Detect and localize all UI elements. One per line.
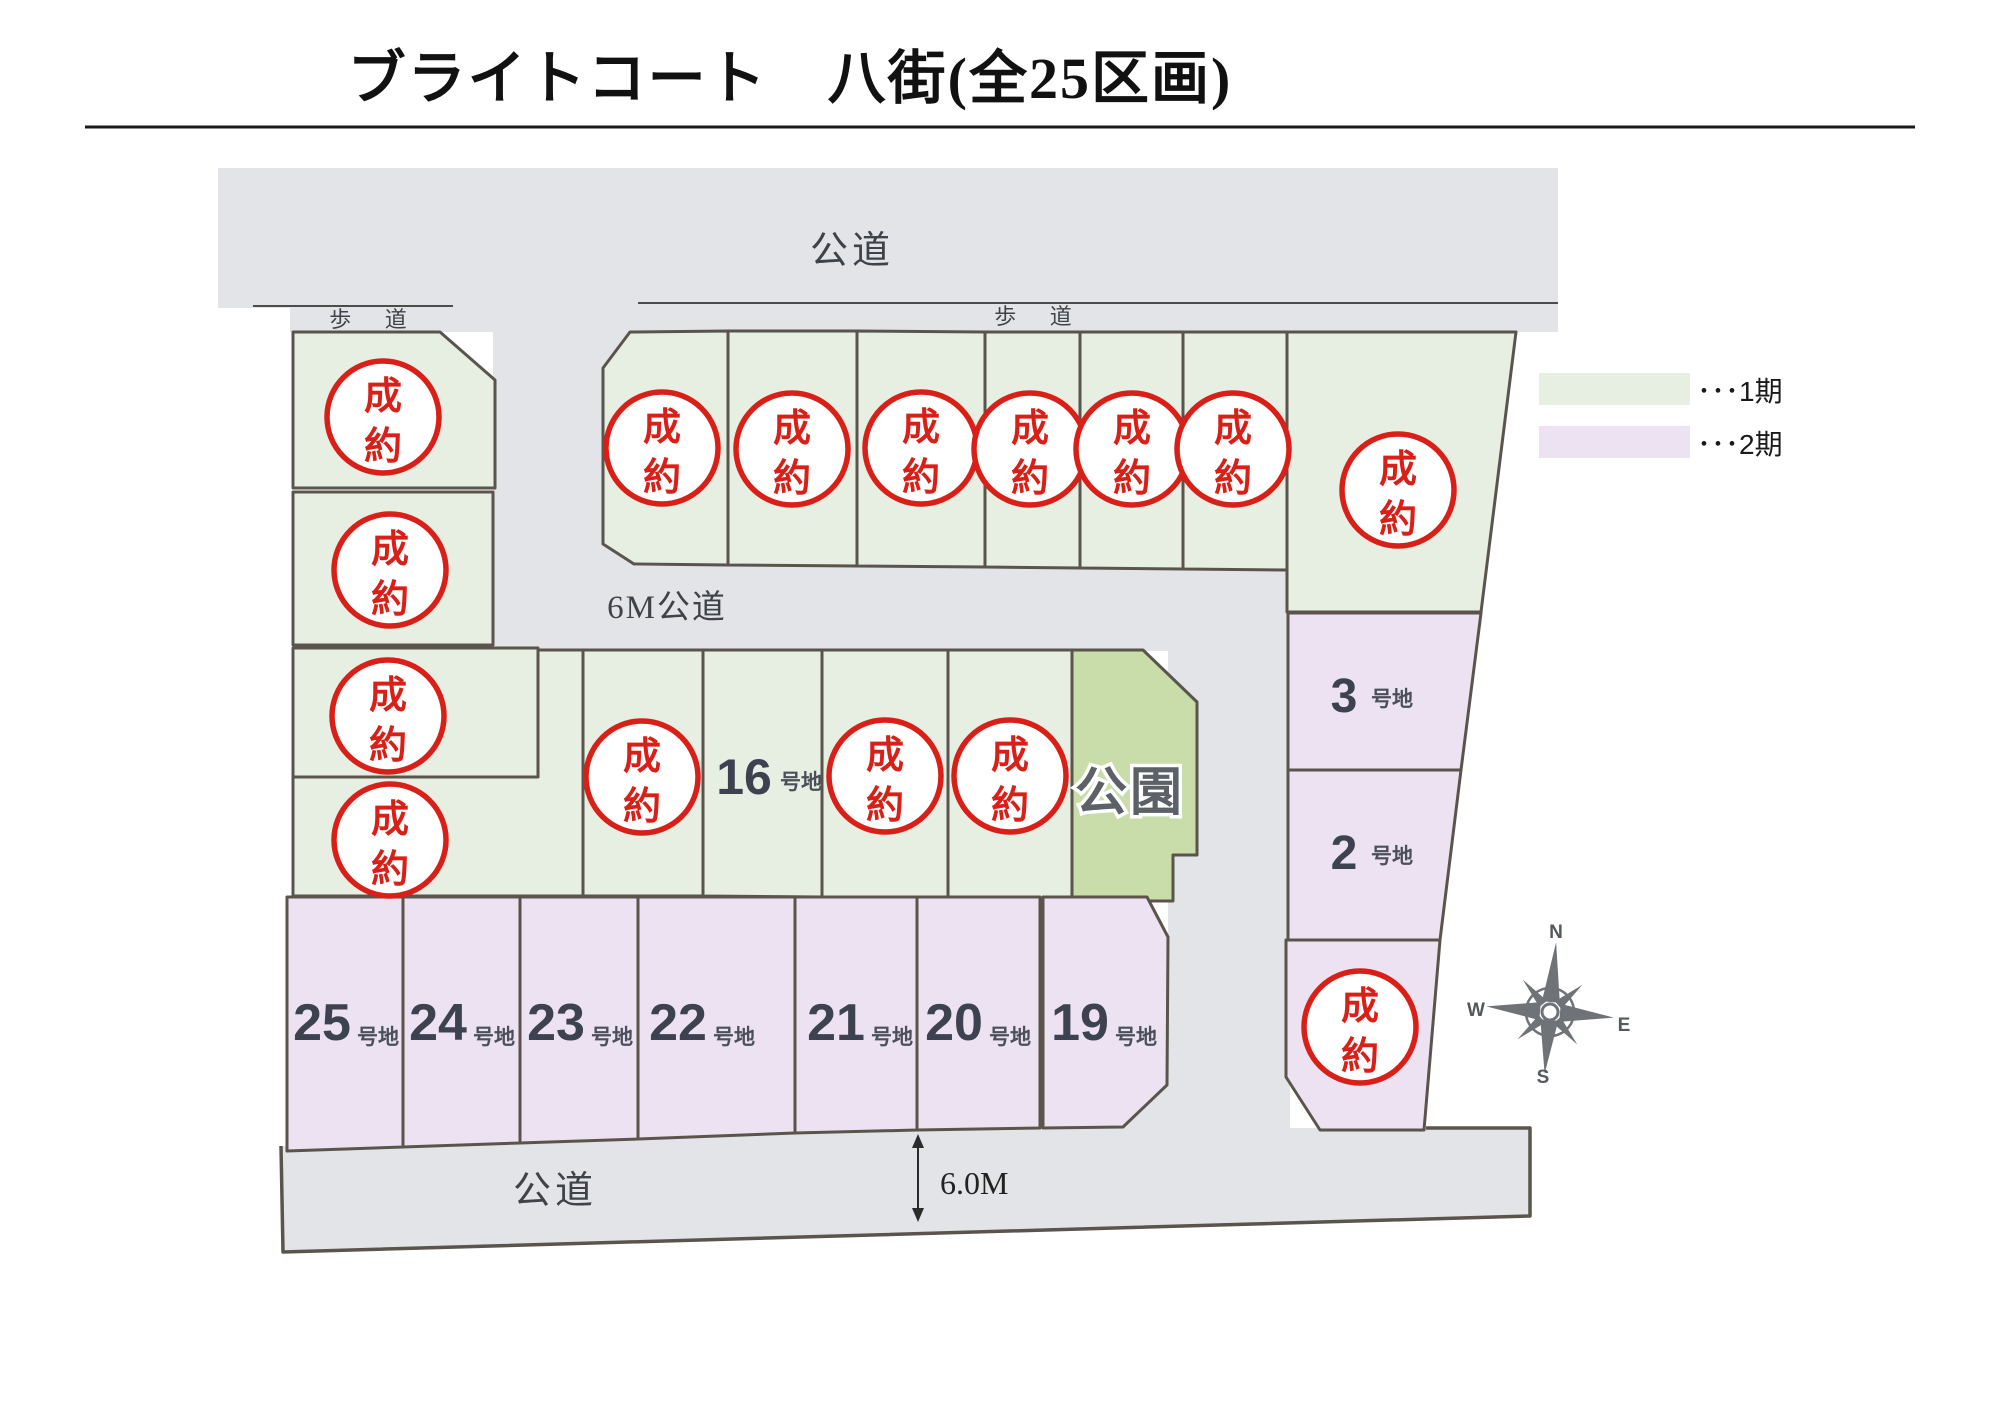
label-road-6m: 6M公道 [607,589,727,626]
sold-char-1: 成 [991,735,1029,777]
lot-2-number-suffix: 号地 [1371,844,1413,868]
site-plan-svg: 16号地公園3号地2号地25号地24号地23号地22号地21号地20号地19号地… [0,0,2000,1414]
sold-char-2: 約 [371,579,409,621]
sold-char-1: 成 [1011,408,1049,450]
dimension-label: 6.0M [940,1165,1008,1201]
lot-3-number-suffix: 号地 [1371,687,1413,711]
compass-hub [1541,1003,1558,1020]
lot-3-number: 3 [1331,670,1358,723]
compass-point-4 [1559,1004,1614,1027]
lot-top-4-sold-stamp: 成約 [974,393,1086,505]
compass-rose [1481,937,1620,1080]
legend-label-phase1: ･･･1期 [1697,376,1783,407]
lot-22-number: 22 [649,994,707,1052]
lot-16-number: 16 [716,749,772,805]
legend-swatch-phase1 [1539,373,1690,405]
sold-char-1: 成 [1341,986,1379,1028]
lot-21-number-suffix: 号地 [871,1025,913,1049]
lot-25-number: 25 [293,994,351,1052]
sold-char-2: 約 [369,725,407,767]
sold-char-1: 成 [623,736,661,778]
sold-char-2: 約 [902,457,940,499]
label-sidewalk-left: 歩 道 [329,307,421,332]
lot-23-number: 23 [527,994,585,1052]
lot-west-2-sold-stamp: 成約 [334,514,446,626]
lot-25-number-suffix: 号地 [357,1025,399,1049]
lot-24-number: 24 [409,994,467,1052]
lot-19-number-suffix: 号地 [1115,1025,1157,1049]
lot-top-1-sold-stamp: 成約 [606,392,718,504]
lot-19-number: 19 [1051,994,1109,1052]
lot-22-number-suffix: 号地 [713,1025,755,1049]
sold-char-2: 約 [1011,458,1049,500]
sold-char-1: 成 [643,407,681,449]
sold-char-2: 約 [991,785,1029,827]
lot-top-6-sold-stamp: 成約 [1177,393,1289,505]
lot-west-4-sold-stamp: 成約 [334,784,446,896]
sold-char-1: 成 [1214,408,1252,450]
map-render-root: 16号地公園3号地2号地25号地24号地23号地22号地21号地20号地19号地… [218,168,1630,1252]
page-title: ブライトコート 八街(全25区画) [348,46,1233,111]
lot-21-number: 21 [807,994,865,1052]
lot-west-1-sold-stamp: 成約 [327,361,439,473]
compass-label-W: W [1467,1000,1485,1021]
lot-2-number: 2 [1331,827,1358,880]
sold-char-2: 約 [623,786,661,828]
lot-24-number-suffix: 号地 [473,1025,515,1049]
lot-16-number-suffix: 号地 [780,770,822,794]
compass-point-3 [1485,997,1540,1020]
lot-top-3-sold-stamp: 成約 [865,392,977,504]
lot-20-number: 20 [925,994,983,1052]
sold-char-2: 約 [371,849,409,891]
compass-label-N: N [1549,922,1563,943]
legend: ･･･1期 ･･･2期 [1539,373,1783,460]
sold-char-2: 約 [643,457,681,499]
sold-char-1: 成 [369,675,407,717]
label-sidewalk-right: 歩 道 [994,304,1086,329]
sold-char-2: 約 [866,785,904,827]
sold-char-1: 成 [1379,449,1417,491]
legend-label-phase2: ･･･2期 [1697,429,1783,460]
label-road-bottom: 公道 [513,1170,597,1212]
lot-23-number-suffix: 号地 [591,1025,633,1049]
sold-char-1: 成 [902,407,940,449]
sold-char-1: 成 [866,735,904,777]
compass-label-S: S [1537,1067,1550,1088]
sold-char-1: 成 [364,376,402,418]
label-road-top: 公道 [810,230,894,272]
lot-top-2-sold-stamp: 成約 [736,393,848,505]
lot-20-number-suffix: 号地 [989,1025,1031,1049]
lot-top-5-sold-stamp: 成約 [1076,393,1188,505]
lot-park-label: 公園 [1075,764,1185,822]
compass-point-1 [1542,941,1565,1002]
sold-char-1: 成 [371,529,409,571]
sold-char-1: 成 [371,799,409,841]
sold-char-2: 約 [773,458,811,500]
sold-char-1: 成 [1113,408,1151,450]
lot-west-3-sold-stamp: 成約 [332,660,444,772]
lot-top-7-sold-stamp: 成約 [1342,434,1454,546]
site-plan-page: 16号地公園3号地2号地25号地24号地23号地22号地21号地20号地19号地… [0,0,2000,1414]
sold-char-2: 約 [364,426,402,468]
lot-mid-1-sold-stamp: 成約 [586,721,698,833]
compass-label-E: E [1618,1015,1631,1036]
lot-mid-4-sold-stamp: 成約 [954,720,1066,832]
sold-char-2: 約 [1113,458,1151,500]
lot-mid-3-sold-stamp: 成約 [829,720,941,832]
lot-east-sold-sold-stamp: 成約 [1304,971,1416,1083]
legend-swatch-phase2 [1539,426,1690,458]
sold-char-2: 約 [1214,458,1252,500]
sold-char-2: 約 [1341,1036,1379,1078]
sold-char-1: 成 [773,408,811,450]
sold-char-2: 約 [1379,499,1417,541]
